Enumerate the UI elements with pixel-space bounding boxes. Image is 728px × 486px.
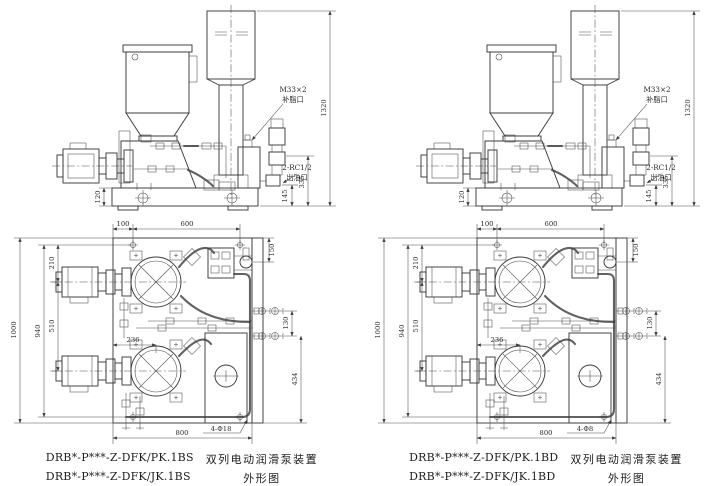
model-code-line2: DRB*-P***-Z-DFK/JK.1BD <box>409 470 558 486</box>
dim-motor-spacing: 510 <box>412 320 420 333</box>
dim-hole-row-span: 940 <box>34 325 42 338</box>
dim-edge-to-hole: 100 <box>117 220 130 228</box>
dim-hole-span: 600 <box>181 220 194 228</box>
dim-motor-spacing: 510 <box>48 320 56 333</box>
plan-annotations: 100 600 1000 940 210 510 150 130 434 236… <box>374 220 663 437</box>
dim-hole-span: 600 <box>545 220 558 228</box>
dim-edge-to-hole: 100 <box>481 220 494 228</box>
model-code-line2: DRB*-P***-Z-DFK/JK.1BS <box>46 470 194 486</box>
caption-desc-line1: 双列电动润滑泵装置 <box>570 451 683 467</box>
panel-left-unit: M33×2 补脂口 2-RC1/2 出油口 1320 335 145 120 1… <box>0 0 364 486</box>
fill-port-thread-label: M33×2 <box>279 85 306 94</box>
dim-hole-row-span: 940 <box>398 325 406 338</box>
dim-top-to-motor1: 210 <box>48 257 56 270</box>
fill-port-thread-label: M33×2 <box>643 85 670 94</box>
dim-total-depth: 1000 <box>10 321 18 338</box>
dim-total-height: 1320 <box>320 99 328 116</box>
dim-outlet-port-height: 335 <box>298 176 306 189</box>
caption-desc-line2: 外形图 <box>206 470 319 486</box>
fill-port-label: 补脂口 <box>282 95 304 104</box>
fill-port-label: 补脂口 <box>646 95 668 104</box>
dim-total-height: 1320 <box>684 99 692 116</box>
dim-top-to-motor1: 210 <box>412 257 420 270</box>
mounting-holes-label: 4-Φ18 <box>211 425 232 433</box>
dim-hole-col-span: 800 <box>176 429 189 437</box>
outlet-thread-label: 2-RC1/2 <box>282 163 311 172</box>
dim-valve-row-spacing: 130 <box>282 317 290 330</box>
caption-right: DRB*-P***-Z-DFK/PK.1BD 双列电动润滑泵装置 DRB*-P*… <box>364 451 728 486</box>
dim-fill-pump-offset: 150 <box>632 244 640 257</box>
technical-drawing-right: M33×2 补脂口 2-RC1/2 出油口 1320 335 145 120 1… <box>364 0 728 452</box>
model-code-line1: DRB*-P***-Z-DFK/PK.1BS <box>46 451 194 467</box>
caption-desc-line2: 外形图 <box>570 470 683 486</box>
panel-right-unit: M33×2 补脂口 2-RC1/2 出油口 1320 335 145 120 1… <box>364 0 728 486</box>
dim-base-height: 120 <box>458 191 466 204</box>
caption-desc-line1: 双列电动润滑泵装置 <box>206 451 319 467</box>
dim-base-height: 120 <box>94 191 102 204</box>
technical-drawing-left: M33×2 补脂口 2-RC1/2 出油口 1320 335 145 120 1… <box>0 0 364 452</box>
plan-view <box>14 224 307 444</box>
dim-valve-to-bottom: 434 <box>655 373 663 386</box>
dim-pump-axis-offset: 236 <box>491 336 504 344</box>
caption-left: DRB*-P***-Z-DFK/PK.1BS 双列电动润滑泵装置 DRB*-P*… <box>0 451 364 486</box>
dim-outlet-port-height: 335 <box>662 176 670 189</box>
plan-view <box>378 224 671 444</box>
dim-pump-axis-offset: 236 <box>127 336 140 344</box>
model-code-line1: DRB*-P***-Z-DFK/PK.1BD <box>409 451 558 467</box>
engineering-drawing-canvas: M33×2 补脂口 2-RC1/2 出油口 1320 335 145 120 1… <box>0 0 728 486</box>
dim-outlet-elbow-height: 145 <box>281 190 289 203</box>
dim-total-depth: 1000 <box>374 321 382 338</box>
outlet-thread-label: 2-RC1/2 <box>646 163 675 172</box>
dim-fill-pump-offset: 150 <box>268 244 276 257</box>
dim-hole-col-span: 800 <box>540 429 553 437</box>
plan-annotations: 100 600 1000 940 210 510 150 130 434 236… <box>10 220 299 437</box>
mounting-holes-label: 4-Φ8 <box>577 425 594 433</box>
dim-valve-to-bottom: 434 <box>291 373 299 386</box>
dim-outlet-elbow-height: 145 <box>645 190 653 203</box>
dim-valve-row-spacing: 130 <box>646 317 654 330</box>
